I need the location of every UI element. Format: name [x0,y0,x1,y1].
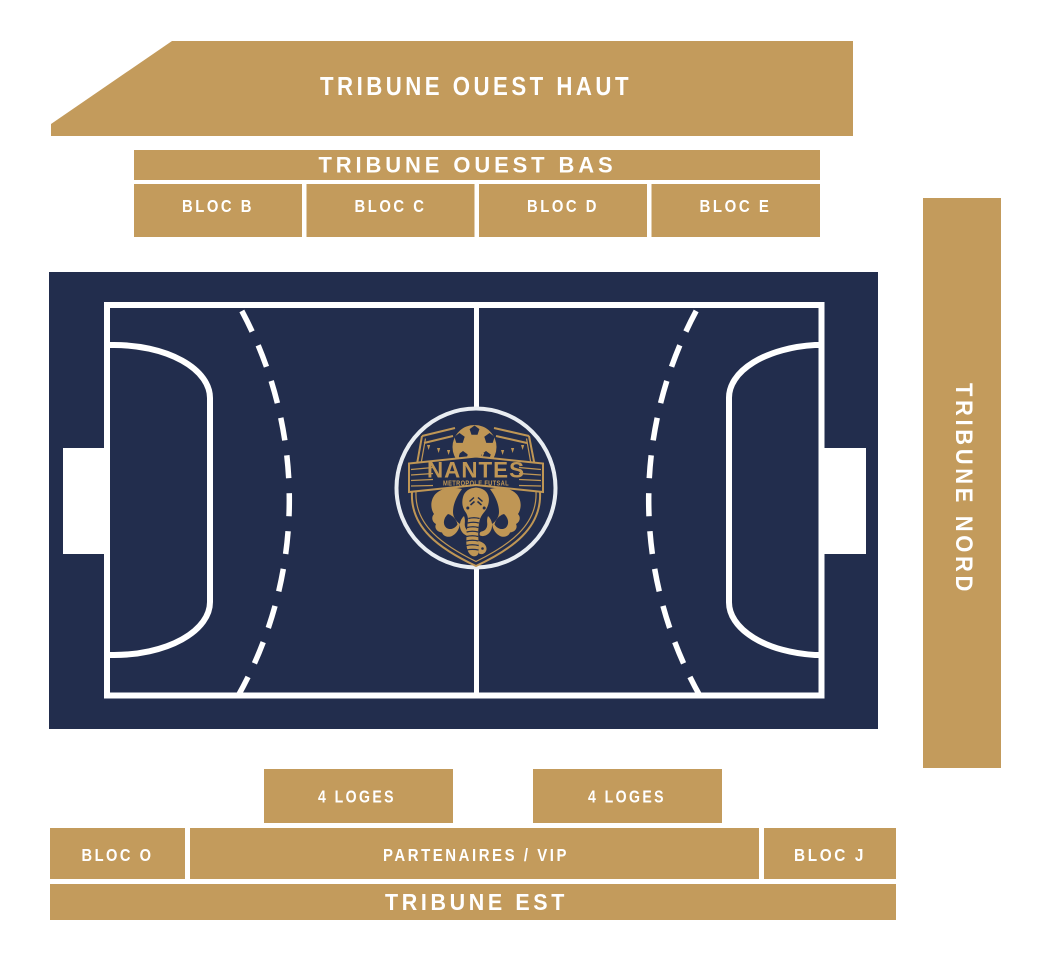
svg-text:NANTES: NANTES [427,458,525,483]
svg-text:TRIBUNE EST: TRIBUNE EST [385,889,568,915]
svg-text:TRIBUNE OUEST BAS: TRIBUNE OUEST BAS [319,153,617,178]
svg-text:BLOC O: BLOC O [82,845,154,865]
svg-text:BLOC B: BLOC B [182,196,254,216]
svg-text:TRIBUNE NORD: TRIBUNE NORD [950,383,977,595]
svg-text:PARTENAIRES / VIP: PARTENAIRES / VIP [383,845,569,865]
svg-text:BLOC J: BLOC J [794,845,866,865]
svg-text:TRIBUNE OUEST HAUT: TRIBUNE OUEST HAUT [320,73,632,101]
svg-text:BLOC C: BLOC C [355,196,427,216]
svg-text:BLOC E: BLOC E [700,196,772,216]
svg-text:4 LOGES: 4 LOGES [318,787,396,807]
svg-text:4 LOGES: 4 LOGES [588,787,666,807]
svg-text:BLOC D: BLOC D [527,196,599,216]
svg-text:METROPOLE FUTSAL: METROPOLE FUTSAL [443,481,509,488]
